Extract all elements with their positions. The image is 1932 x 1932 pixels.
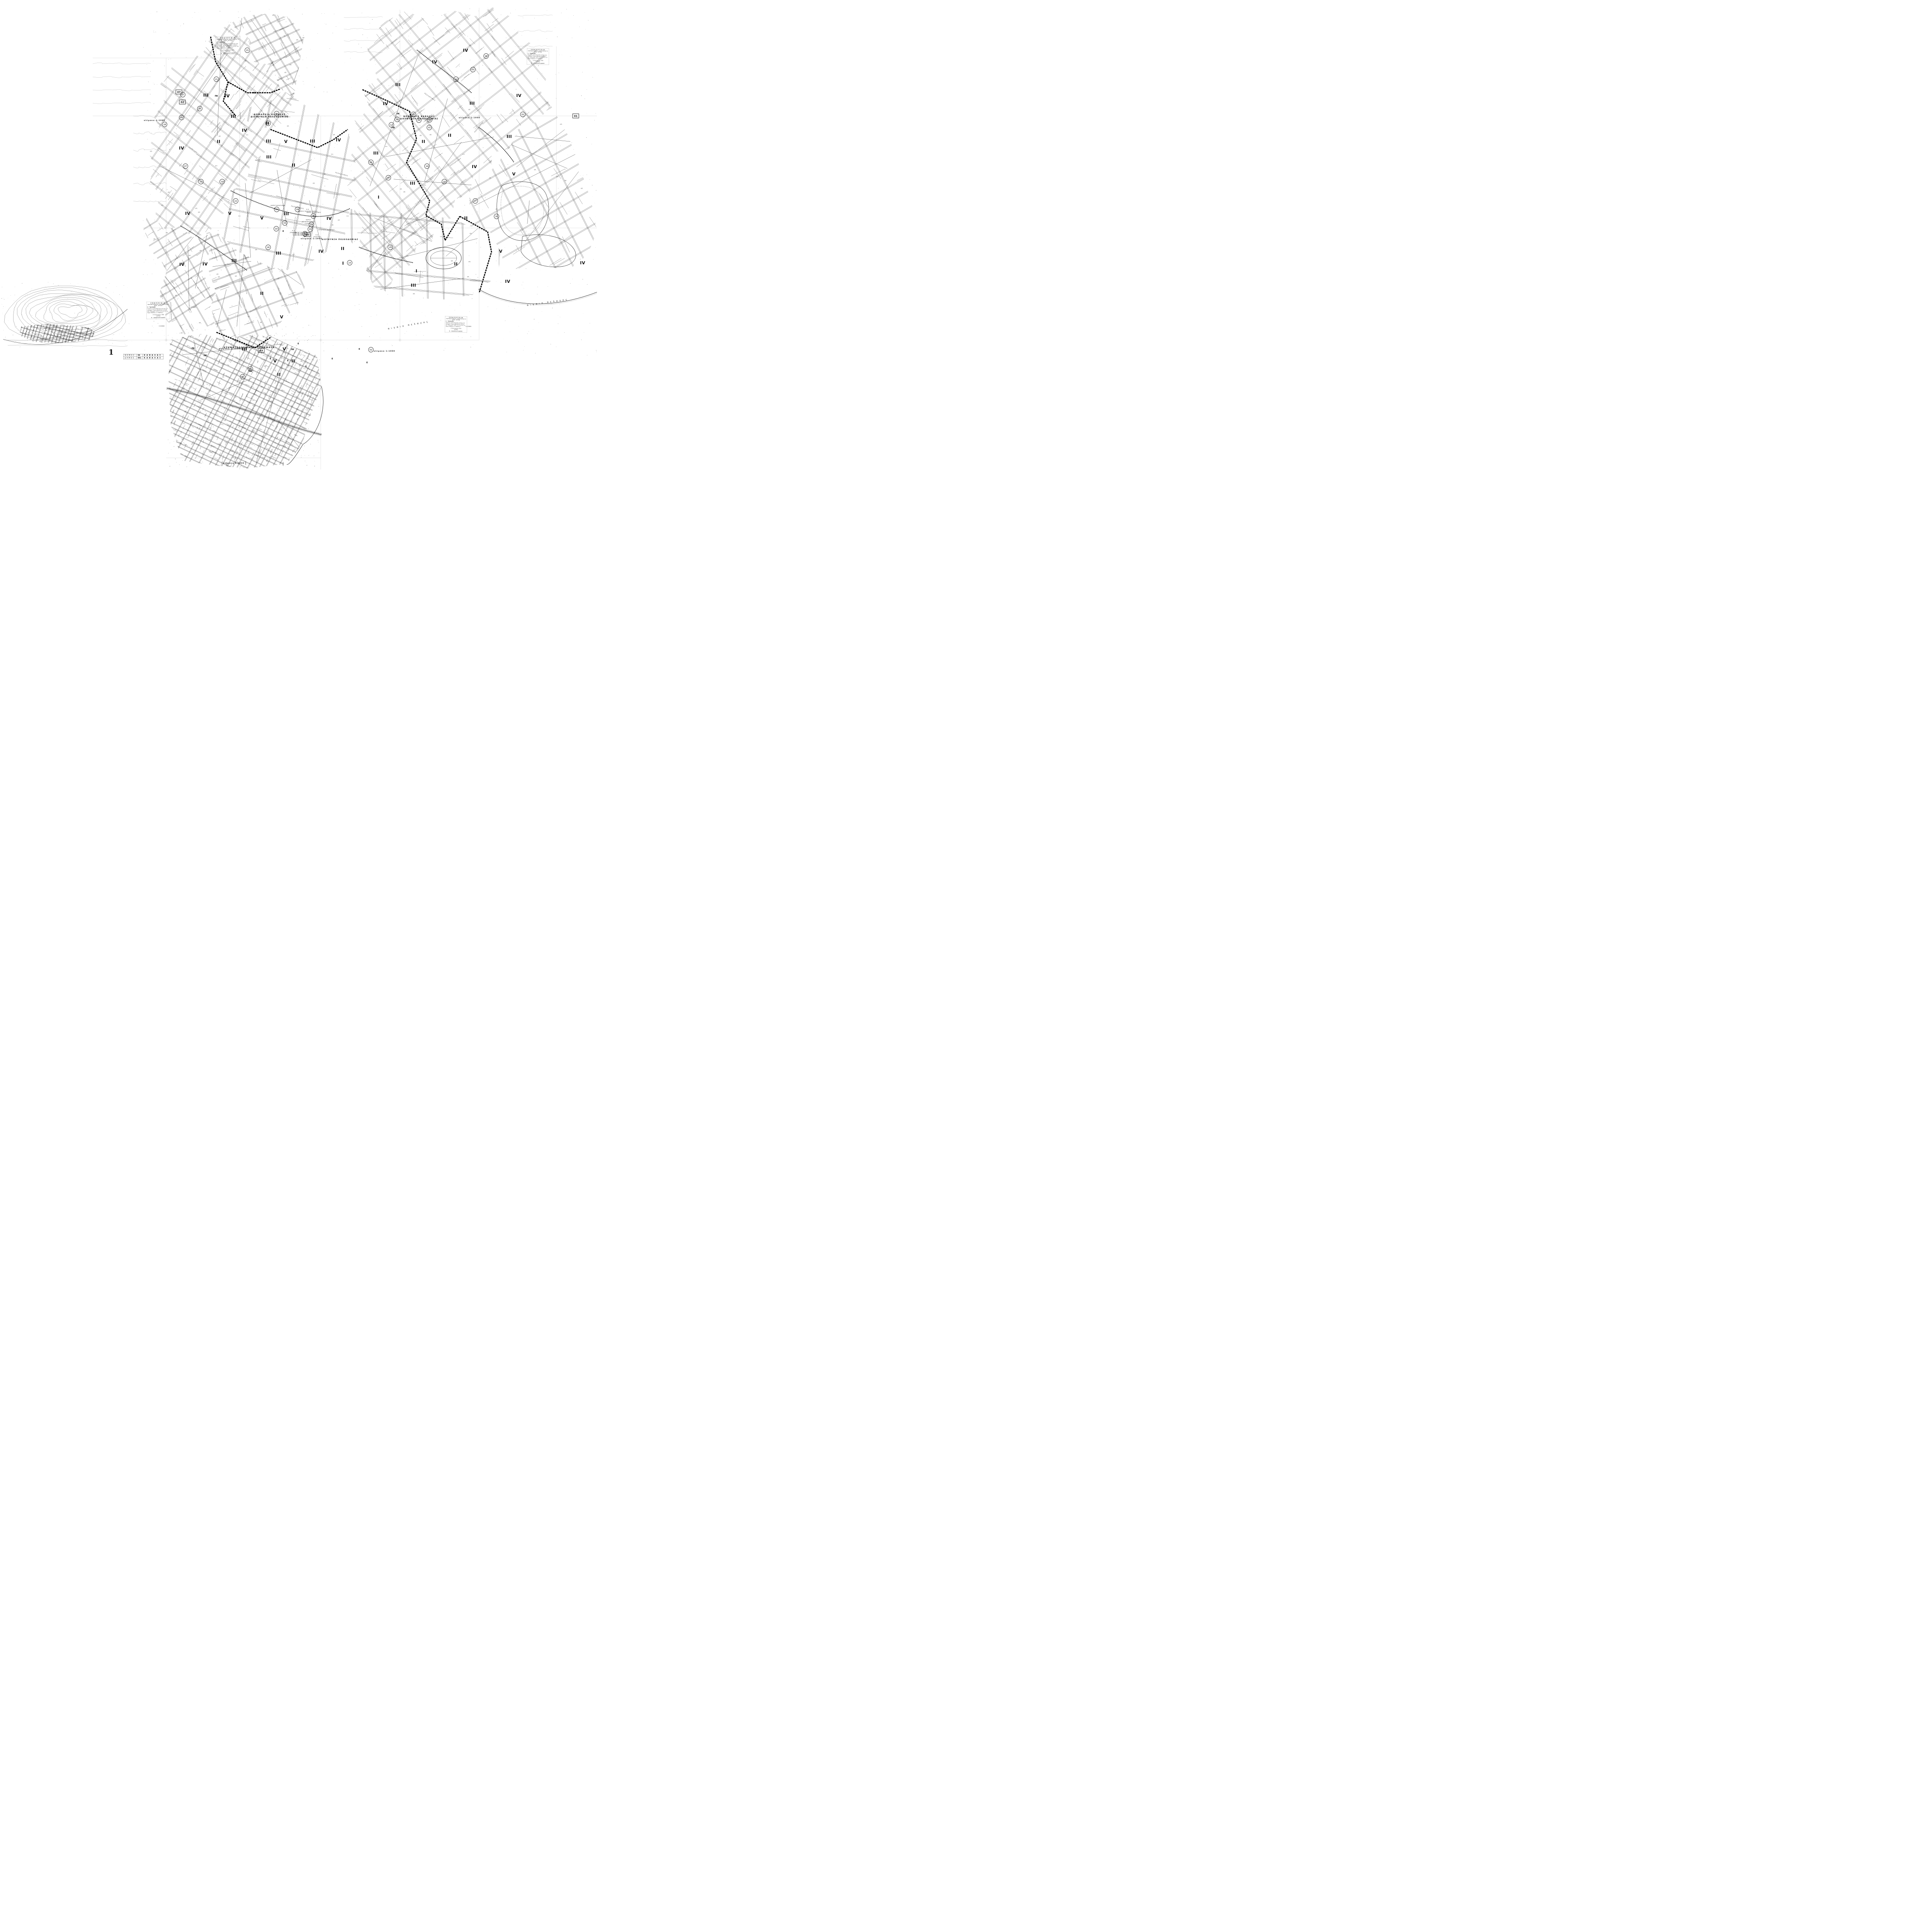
svg-text:ΠΕΖΟΔΡΟΜΟΣ: ΠΕΖΟΔΡΟΜΟΣ	[424, 93, 436, 102]
svg-text:II: II	[291, 359, 295, 364]
svg-text:-3600: -3600	[282, 462, 284, 466]
svg-text:30: 30	[495, 216, 498, 218]
svg-text:ΟΤ.: ΟΤ.	[245, 60, 247, 62]
legend-row-value: ΚΑΒΑΛΑΣ	[143, 354, 163, 357]
svg-text:ΟΤ.: ΟΤ.	[333, 134, 335, 136]
svg-text:09: 09	[275, 209, 278, 211]
svg-text:ΠΕΖΟΔΡΟΜΟΣ: ΠΕΖΟΔΡΟΜΟΣ	[335, 172, 348, 177]
svg-text:ΟΤ.: ΟΤ.	[181, 332, 183, 334]
svg-text:Ε: Ε	[298, 343, 299, 345]
map-features	[3, 37, 597, 464]
stamp-signer-title: Δ/ΝΤΗΣ	[528, 61, 548, 62]
svg-text:I: I	[342, 261, 344, 266]
svg-text:16: 16	[198, 108, 201, 110]
svg-text:-3800: -3800	[245, 461, 247, 466]
scale-labels: κλίμακα 1:1000κλίμακα 1:1000κλίμακα 1:10…	[144, 116, 480, 464]
sheet-number-boxes: 0203020107	[176, 90, 579, 353]
svg-text:22: 22	[234, 200, 237, 202]
svg-text:II: II	[217, 139, 220, 144]
svg-text:ΠΚ: ΠΚ	[392, 127, 395, 129]
svg-text:ΠΚ: ΠΚ	[249, 370, 252, 372]
svg-text:-3500: -3500	[226, 462, 228, 467]
svg-text:ΟΤ.: ΟΤ.	[195, 207, 197, 209]
svg-text:IV: IV	[224, 94, 230, 99]
svg-text:ΟΤ.: ΟΤ.	[219, 136, 221, 137]
svg-text:ΟΤ.: ΟΤ.	[189, 255, 191, 257]
svg-text:ΟΤ.: ΟΤ.	[248, 316, 250, 318]
svg-text:III: III	[203, 93, 209, 98]
svg-text:V: V	[512, 172, 515, 177]
svg-text:02: 02	[369, 349, 372, 351]
ministry-approval-stamp: ΥΠΟΥΡΓΕΙΟ ΠΕΡΙΒΑΛΛΟΝΤΟΣ ΧΩΡΟΤΑΞΙΑΣ & ΔΗΜ…	[146, 302, 170, 319]
svg-text:III: III	[395, 82, 401, 87]
sea-name-labels: αιγαιο πελαγοςαιγαιο πελαγος	[388, 298, 569, 330]
urban-block-cluster	[68, 162, 291, 389]
sheet-number: 1	[109, 348, 114, 357]
stamp-ministry-dept: ΠΕΡΙΒΑΛΛΟΝΤΟΣ ΧΩΡΟΤΑΞΙΑΣ & ΔΗΜ. ΕΡΓΩΝ	[528, 50, 548, 53]
svg-text:13: 13	[199, 181, 202, 183]
svg-text:26: 26	[387, 177, 390, 179]
stamp-signature: Ν. ΚΟΚΝΟΤΑΚΗΣ	[217, 52, 240, 54]
svg-text:II: II	[448, 133, 451, 138]
stamp-signer-title: Δ/ΝΤΗΣ	[446, 329, 466, 330]
prefecture-municipality-legend: ΝΟΜΟΣ 04 ΚΑΒΑΛΑΣ ΔΗΜΟΣ 001 ΚΑΒΑΛΑΣ	[123, 354, 163, 359]
svg-text:Κ.Χ.: Κ.Χ.	[316, 234, 319, 236]
svg-text:ΟΤ.: ΟΤ.	[166, 232, 168, 234]
svg-text:07: 07	[177, 91, 180, 94]
svg-text:+21500: +21500	[158, 325, 165, 327]
svg-text:κλίμακα 1:1000: κλίμακα 1:1000	[374, 350, 395, 352]
svg-text:ΟΤ.: ΟΤ.	[183, 388, 185, 389]
svg-text:28: 28	[267, 247, 270, 249]
svg-text:ΟΤ.: ΟΤ.	[284, 72, 287, 73]
svg-text:Κ.Χ.: Κ.Χ.	[293, 254, 295, 255]
svg-text:ΟΤ.: ΟΤ.	[168, 192, 170, 193]
svg-text:II: II	[454, 262, 457, 267]
svg-text:06: 06	[485, 55, 488, 58]
urban-block-cluster	[99, 253, 395, 472]
svg-text:19: 19	[221, 181, 224, 183]
svg-text:Ε: Ε	[282, 230, 284, 233]
svg-text:05: 05	[180, 117, 183, 119]
svg-text:III: III	[266, 139, 271, 144]
scan-noise	[2, 8, 597, 468]
legend-row-label: ΝΟΜΟΣ	[123, 354, 136, 357]
svg-text:ΟΤ.: ΟΤ.	[338, 219, 340, 221]
svg-text:03: 03	[259, 349, 263, 352]
svg-text:ΟΤ.: ΟΤ.	[287, 125, 289, 127]
svg-text:ΟΤ.: ΟΤ.	[222, 376, 224, 378]
svg-text:III: III	[411, 283, 416, 288]
svg-text:10: 10	[275, 228, 278, 230]
svg-text:Κ.Χ.: Κ.Χ.	[269, 180, 272, 182]
svg-text:ΟΤ.: ΟΤ.	[420, 135, 422, 136]
svg-text:02: 02	[180, 101, 184, 104]
svg-text:14: 14	[425, 165, 429, 168]
svg-text:ΟΤ.: ΟΤ.	[270, 401, 273, 402]
svg-text:ΟΤ.: ΟΤ.	[216, 274, 219, 275]
svg-text:ΟΤ.: ΟΤ.	[496, 208, 498, 210]
svg-text:IV: IV	[179, 262, 185, 267]
svg-text:Ε: Ε	[332, 358, 333, 360]
stamp-ministry-dept: ΠΕΡΙΒΑΛΛΟΝΤΟΣ ΧΩΡΟΤΑΞΙΑΣ & ΔΗΜ. ΕΡΓΩΝ	[446, 318, 466, 320]
svg-text:αιγαιο πελαγος: αιγαιο πελαγος	[388, 320, 430, 330]
svg-text:ΟΤ.: ΟΤ.	[260, 321, 262, 323]
svg-text:ΟΤ.: ΟΤ.	[467, 276, 469, 278]
svg-text:ΟΤ.: ΟΤ.	[406, 255, 408, 257]
svg-text:13: 13	[296, 233, 298, 235]
svg-text:21: 21	[215, 78, 218, 81]
svg-text:ΟΤ.: ΟΤ.	[198, 212, 201, 213]
svg-text:ΟΤ.: ΟΤ.	[199, 322, 201, 323]
svg-text:ΟΤ.: ΟΤ.	[235, 276, 237, 277]
svg-text:ΟΤ.: ΟΤ.	[218, 276, 220, 278]
svg-text:ΧΩΡΟΣ ΔΗΜΟΤΙΚΟΥ: ΧΩΡΟΣ ΔΗΜΟΤΙΚΟΥ	[306, 212, 321, 213]
svg-text:Κ.Χ.: Κ.Χ.	[246, 134, 248, 136]
svg-text:Κ.Χ.: Κ.Χ.	[306, 209, 310, 210]
svg-text:IV: IV	[179, 146, 184, 151]
legend-row-code: 04	[136, 354, 143, 357]
svg-text:III: III	[231, 114, 236, 119]
svg-text:Κ.Χ.: Κ.Χ.	[292, 230, 295, 231]
svg-text:ΟΤ.: ΟΤ.	[161, 205, 163, 206]
svg-text:IV: IV	[383, 101, 388, 106]
svg-text:(ΠΛΑΤΕΙΑ): (ΠΛΑΤΕΙΑ)	[290, 232, 298, 233]
svg-text:III: III	[310, 139, 315, 144]
svg-text:03: 03	[309, 228, 312, 231]
stamp-signature: Ν. ΚΟΚΝΟΤΑΚΗΣ	[148, 317, 169, 318]
svg-text:III: III	[284, 211, 289, 216]
svg-text:ΟΤ.: ΟΤ.	[560, 124, 562, 125]
svg-text:15: 15	[302, 233, 303, 235]
svg-text:ΝΟΜΑΡΧΙΑ ΚΑΒΑΛΑΣ: ΝΟΜΑΡΧΙΑ ΚΑΒΑΛΑΣ	[403, 116, 435, 118]
svg-text:II: II	[464, 216, 468, 221]
svg-text:Ε: Ε	[359, 348, 360, 350]
svg-text:II: II	[260, 291, 264, 296]
svg-text:IV: IV	[463, 48, 468, 53]
svg-text:ΟΤ.: ΟΤ.	[469, 45, 471, 46]
svg-text:ΟΤ.: ΟΤ.	[565, 180, 567, 181]
svg-text:16: 16	[304, 233, 306, 235]
contour-lines	[4, 286, 126, 343]
svg-text:Ε: Ε	[270, 358, 271, 360]
svg-text:+21500: +21500	[190, 306, 196, 308]
svg-text:ΠΚ: ΠΚ	[204, 355, 207, 357]
svg-text:ΟΤ.: ΟΤ.	[489, 177, 492, 179]
svg-text:12: 12	[294, 233, 295, 235]
svg-text:V: V	[282, 347, 286, 352]
stamp-signature: Ν. ΚΟΚΝΟΤΑΚΗΣ	[528, 63, 548, 64]
terrain-contours	[518, 15, 553, 47]
map-title: ΚΤΗΜΑΤΟΛΟΓΙΚΑ ΔΙΑΓΡΑΜΜΑΤΑ	[224, 347, 275, 349]
svg-text:ΚΤΗΜΑΤΟΛΟΓΙΚΑ ΔΙΑΓΡΑΜΜΑΤΑ: ΚΤΗΜΑΤΟΛΟΓΙΚΑ ΔΙΑΓΡΑΜΜΑΤΑ	[224, 347, 275, 349]
terrain-contours	[133, 116, 166, 202]
urban-block-cluster	[372, 24, 617, 350]
svg-text:ΟΤ.: ΟΤ.	[416, 217, 418, 218]
stamp-approval-text: Εγκρίσεις Πολεοδομικής μελέτης των περιο…	[217, 43, 240, 49]
svg-text:κλίμακα 1:1000: κλίμακα 1:1000	[301, 237, 322, 240]
svg-text:ΟΤ.: ΟΤ.	[150, 151, 152, 152]
svg-text:ΧΩΡΟΣ: ΧΩΡΟΣ	[306, 219, 311, 221]
svg-text:ΟΤ.: ΟΤ.	[430, 134, 432, 136]
svg-text:ΟΤ.: ΟΤ.	[264, 366, 266, 367]
svg-text:ΟΤ.: ΟΤ.	[423, 221, 426, 223]
ministry-approval-stamp: ΥΠΟΥΡΓΕΙΟ ΠΕΡΙΒΑΛΛΟΝΤΟΣ ΧΩΡΟΤΑΞΙΑΣ & ΔΗΜ…	[216, 36, 241, 55]
terrain-contours	[93, 63, 151, 104]
svg-text:III: III	[469, 101, 475, 106]
svg-text:Ε: Ε	[305, 366, 307, 368]
svg-text:III: III	[276, 251, 281, 256]
svg-text:ΠΕΖΟΔΡΟΜΟΣ: ΠΕΖΟΔΡΟΜΟΣ	[403, 228, 416, 235]
svg-text:08: 08	[267, 122, 270, 125]
svg-text:κλίμακα 1:1000: κλίμακα 1:1000	[144, 119, 165, 122]
ministry-approval-stamp: ΥΠΟΥΡΓΕΙΟ ΠΕΡΙΒΑΛΛΟΝΤΟΣ ΧΩΡΟΤΑΞΙΑΣ & ΔΗΜ…	[445, 316, 467, 333]
svg-text:IV: IV	[318, 249, 324, 254]
svg-text:27: 27	[474, 200, 477, 202]
svg-text:II: II	[422, 139, 425, 144]
stamp-signer-title: Δ/ΝΤΗΣ	[217, 51, 240, 52]
svg-text:25: 25	[369, 162, 372, 164]
svg-text:18: 18	[163, 124, 166, 126]
svg-text:II: II	[292, 163, 295, 168]
svg-text:01: 01	[428, 127, 431, 129]
svg-text:ΟΤ.: ΟΤ.	[153, 238, 156, 240]
svg-text:ΟΤ.: ΟΤ.	[469, 233, 472, 234]
svg-text:ΟΤ.: ΟΤ.	[284, 36, 286, 37]
svg-text:Κ.Χ.: Κ.Χ.	[424, 184, 426, 186]
svg-text:αιγαιο πελαγος: αιγαιο πελαγος	[527, 298, 569, 306]
svg-text:ΟΤ.: ΟΤ.	[277, 278, 280, 279]
urban-block-cluster	[128, 24, 433, 346]
svg-text:ΠΚ: ΠΚ	[215, 95, 218, 97]
stamp-approval-text: Εγκρίσεις Πολεοδομικής μελέτης των περιο…	[446, 322, 466, 328]
svg-text:23: 23	[348, 262, 351, 264]
svg-text:ΟΤ.: ΟΤ.	[556, 176, 559, 178]
svg-text:Κ.Χ.: Κ.Χ.	[347, 215, 349, 217]
svg-text:ΟΤ.: ΟΤ.	[313, 183, 315, 184]
svg-text:II: II	[341, 246, 344, 251]
svg-text:20: 20	[307, 233, 309, 235]
svg-text:ΔΙΕΥΘΥΝΣΗ ΠΟΛΕΟΔΟΜΙΑΣ: ΔΙΕΥΘΥΝΣΗ ΠΟΛΕΟΔΟΜΙΑΣ	[321, 238, 358, 241]
svg-text:κλίμακα 1:1000: κλίμακα 1:1000	[459, 116, 480, 119]
svg-text:IV: IV	[336, 138, 341, 143]
svg-text:V: V	[499, 249, 502, 254]
svg-text:IV: IV	[185, 211, 190, 216]
svg-text:ΠΕΖΟΔΡΟΜΟΣ: ΠΕΖΟΔΡΟΜΟΣ	[266, 60, 274, 73]
svg-text:ΟΤ.: ΟΤ.	[200, 250, 202, 252]
svg-text:ΟΤ.: ΟΤ.	[400, 188, 402, 190]
svg-text:05: 05	[241, 376, 244, 378]
svg-text:IV: IV	[327, 216, 332, 221]
svg-text:IV: IV	[580, 260, 585, 265]
svg-text:IV: IV	[202, 262, 208, 267]
svg-text:III: III	[410, 181, 415, 186]
block-numbers: 3117161805080909011005040302240405120201…	[162, 48, 526, 379]
svg-text:ΟΤ.: ΟΤ.	[324, 173, 326, 175]
svg-text:IV: IV	[432, 60, 437, 65]
svg-text:Ε: Ε	[287, 360, 289, 362]
svg-text:V: V	[280, 315, 283, 320]
svg-text:ΠΕΖΟΔΡΟΜΟΣ: ΠΕΖΟΔΡΟΜΟΣ	[211, 122, 221, 133]
svg-text:III: III	[266, 155, 272, 160]
legend-row-value: ΚΑΒΑΛΑΣ	[143, 357, 163, 359]
svg-text:ΠΚ: ΠΚ	[291, 349, 294, 351]
legend-row-code: 001	[136, 357, 143, 359]
svg-text:IV: IV	[516, 93, 522, 98]
map-canvas: IIIIVIIIIIIVIVIIIIIVIIIIVIIIIIIVVVIIIIVI…	[0, 0, 617, 472]
svg-text:IV: IV	[505, 279, 510, 284]
svg-text:ΟΤ.: ΟΤ.	[451, 260, 453, 262]
land-use-code-labels: ΠΚΠΚΠΚΠΚΠΚΠΚΠΚΠΚΕΕΕΕΕΕΕΕΚ.Χ.Κ.Χ.Κ.Χ.Κ.Χ.…	[192, 92, 465, 372]
svg-text:05: 05	[312, 215, 315, 218]
legend-row-label: ΔΗΜΟΣ	[123, 357, 136, 359]
svg-text:ΠΕΖΟΔΡΟΜΟΣ: ΠΕΖΟΔΡΟΜΟΣ	[474, 122, 484, 133]
svg-text:ΒΡΕΦΟΝΗΠΙΑΚΟΥ: ΒΡΕΦΟΝΗΠΙΑΚΟΥ	[302, 221, 315, 223]
stamp-ministry-dept: ΠΕΡΙΒΑΛΛΟΝΤΟΣ ΧΩΡΟΤΑΞΙΑΣ & ΔΗΜ. ΕΡΓΩΝ	[147, 304, 169, 306]
svg-text:Κ.Χ.: Κ.Χ.	[463, 153, 465, 155]
svg-text:II: II	[277, 372, 281, 377]
svg-text:V: V	[284, 139, 287, 144]
svg-text:Κ.Χ.: Κ.Χ.	[331, 153, 333, 155]
svg-text:IV: IV	[472, 164, 477, 169]
svg-text:ΧΩΡΟΣ ΑΘΛΗΤΙΚΩΝ: ΧΩΡΟΣ ΑΘΛΗΤΙΚΩΝ	[270, 205, 285, 206]
svg-text:02: 02	[521, 114, 524, 116]
svg-text:ΟΤ.: ΟΤ.	[255, 249, 257, 251]
svg-text:01: 01	[283, 222, 286, 224]
svg-text:11: 11	[454, 78, 457, 81]
svg-text:ΟΤ.: ΟΤ.	[227, 318, 230, 319]
svg-text:07: 07	[184, 165, 187, 168]
svg-text:Κ.Χ.: Κ.Χ.	[238, 215, 241, 217]
svg-text:ΟΤ.: ΟΤ.	[403, 191, 406, 193]
svg-text:ΟΤ.: ΟΤ.	[303, 37, 305, 39]
svg-text:ΠΕΖΟΔΡΟΜΟΣ: ΠΕΖΟΔΡΟΜΟΣ	[197, 287, 206, 299]
stamp-approval-text: Εγκρίσεις Πολεοδομικής μελέτης των περιο…	[528, 54, 548, 60]
svg-text:14: 14	[299, 233, 301, 235]
stamp-ministry-dept: ΠΕΡΙΒΑΛΛΟΝΤΟΣ ΧΩΡΟΤΑΞΙΑΣ & ΔΗΜ. ΕΡΓΩΝ	[216, 39, 239, 41]
svg-text:24: 24	[396, 119, 399, 121]
svg-text:ΝΟΜΑΡΧΙΑ ΚΑΒΑΛΑΣ: ΝΟΜΑΡΧΙΑ ΚΑΒΑΛΑΣ	[254, 114, 286, 116]
svg-text:ΠΕΖΟΔΡΟΜΟΣ: ΠΕΖΟΔΡΟΜΟΣ	[450, 158, 462, 167]
svg-text:ΟΤ.: ΟΤ.	[468, 109, 471, 111]
svg-text:(ΠΛΑΤΕΙΑ): (ΠΛΑΤΕΙΑ)	[313, 236, 321, 238]
svg-text:IV: IV	[242, 128, 247, 133]
svg-text:ΟΤ.: ΟΤ.	[253, 400, 255, 401]
svg-text:01: 01	[574, 115, 578, 118]
svg-text:ΔΙΕΥΘΥΝΣΗ ΠΟΛΕΟΔΟΜΙΑΣ: ΔΙΕΥΘΥΝΣΗ ΠΟΛΕΟΔΟΜΙΑΣ	[251, 116, 289, 118]
svg-text:29: 29	[389, 247, 392, 249]
svg-text:I: I	[416, 269, 418, 274]
svg-text:ΟΤ.: ΟΤ.	[413, 293, 415, 294]
svg-text:ΠΕΖΟΔΡΟΜΟΣ: ΠΕΖΟΔΡΟΜΟΣ	[235, 143, 246, 152]
svg-text:III: III	[373, 151, 379, 156]
svg-text:ΠΚ: ΠΚ	[192, 347, 195, 350]
svg-text:ΟΤ.: ΟΤ.	[175, 295, 177, 296]
svg-text:III: III	[231, 258, 237, 263]
svg-text:Κ.Χ.: Κ.Χ.	[215, 165, 218, 167]
svg-text:ΔΙΕΥΘΥΝΣΗ ΠΟΛΕΟΔΟΜΙΑΣ: ΔΙΕΥΘΥΝΣΗ ΠΟΛΕΟΔΟΜΙΑΣ	[400, 118, 438, 120]
grid-coordinate-labels: +21500+21500+21500-3500-3800-3600	[158, 306, 471, 467]
scanned-cadastral-map-page: IIIIVIIIIIIVIVIIIIIVIIIIVIIIIIIVVVIIIIVI…	[0, 0, 617, 472]
ministry-approval-stamp: ΥΠΟΥΡΓΕΙΟ ΠΕΡΙΒΑΛΛΟΝΤΟΣ ΧΩΡΟΤΑΞΙΑΣ & ΔΗΜ…	[527, 48, 549, 65]
stamp-signer-title: Δ/ΝΤΗΣ	[147, 315, 169, 316]
svg-text:ΕΡΓΑΤΙΚΕΣ ΚΑΤΟΙΚΙΕΣ: ΕΡΓΑΤΙΚΕΣ ΚΑΤΟΙΚΙΕΣ	[318, 229, 335, 231]
stamp-approval-text: Εγκρίσεις Πολεοδομικής μελέτης των περιο…	[147, 308, 169, 313]
svg-text:Ε: Ε	[366, 362, 368, 364]
svg-text:V: V	[273, 359, 277, 364]
svg-text:ΟΤ.: ΟΤ.	[534, 169, 536, 171]
svg-text:ΠΚ: ΠΚ	[396, 113, 400, 115]
svg-text:I: I	[378, 195, 380, 200]
svg-text:ΟΤ.: ΟΤ.	[272, 14, 275, 16]
svg-text:V: V	[228, 211, 231, 216]
svg-text:ΟΤ.: ΟΤ.	[289, 64, 292, 66]
terrain-contours	[344, 17, 383, 53]
svg-text:ΟΤ.: ΟΤ.	[332, 224, 334, 226]
svg-text:ΟΤ.: ΟΤ.	[469, 261, 471, 263]
svg-text:15: 15	[246, 49, 249, 52]
svg-text:ΟΤ.: ΟΤ.	[296, 39, 299, 41]
svg-text:ΟΤ.: ΟΤ.	[581, 188, 583, 189]
urban-block-cluster	[148, 182, 360, 394]
svg-text:III: III	[507, 134, 512, 139]
svg-text:ΣΤΑΘΜΟΥ: ΣΤΑΘΜΟΥ	[305, 223, 312, 224]
svg-text:V: V	[260, 216, 264, 221]
svg-text:20: 20	[443, 181, 446, 183]
svg-text:ΠΚ: ΠΚ	[253, 92, 256, 94]
svg-text:ΟΤ.: ΟΤ.	[293, 93, 295, 94]
stamp-signature: Ν. ΚΟΚΝΟΤΑΚΗΣ	[446, 330, 466, 332]
svg-text:ΠΕΖΟΔΡΟΜΟΣ: ΠΕΖΟΔΡΟΜΟΣ	[250, 305, 262, 313]
svg-text:Κ.Χ.: Κ.Χ.	[385, 146, 388, 147]
svg-text:03: 03	[471, 69, 474, 71]
svg-text:12: 12	[390, 124, 393, 126]
